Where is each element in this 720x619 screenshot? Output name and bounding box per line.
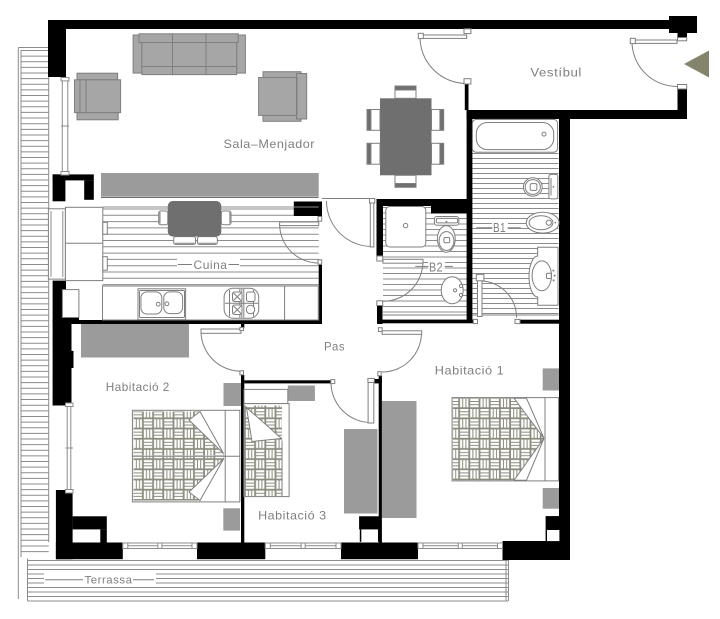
- svg-text:Sala–Menjador: Sala–Menjador: [224, 137, 316, 151]
- svg-text:Habitació 2: Habitació 2: [106, 380, 170, 394]
- svg-text:Habitació 3: Habitació 3: [258, 509, 327, 523]
- svg-text:B2: B2: [429, 261, 443, 275]
- svg-text:Habitació 1: Habitació 1: [435, 364, 505, 378]
- svg-text:B1: B1: [493, 221, 506, 235]
- svg-text:Vestíbul: Vestíbul: [530, 68, 582, 80]
- svg-text:Pas: Pas: [324, 340, 345, 354]
- svg-text:Terrassa: Terrassa: [85, 575, 133, 587]
- svg-text:Cuina: Cuina: [194, 258, 228, 272]
